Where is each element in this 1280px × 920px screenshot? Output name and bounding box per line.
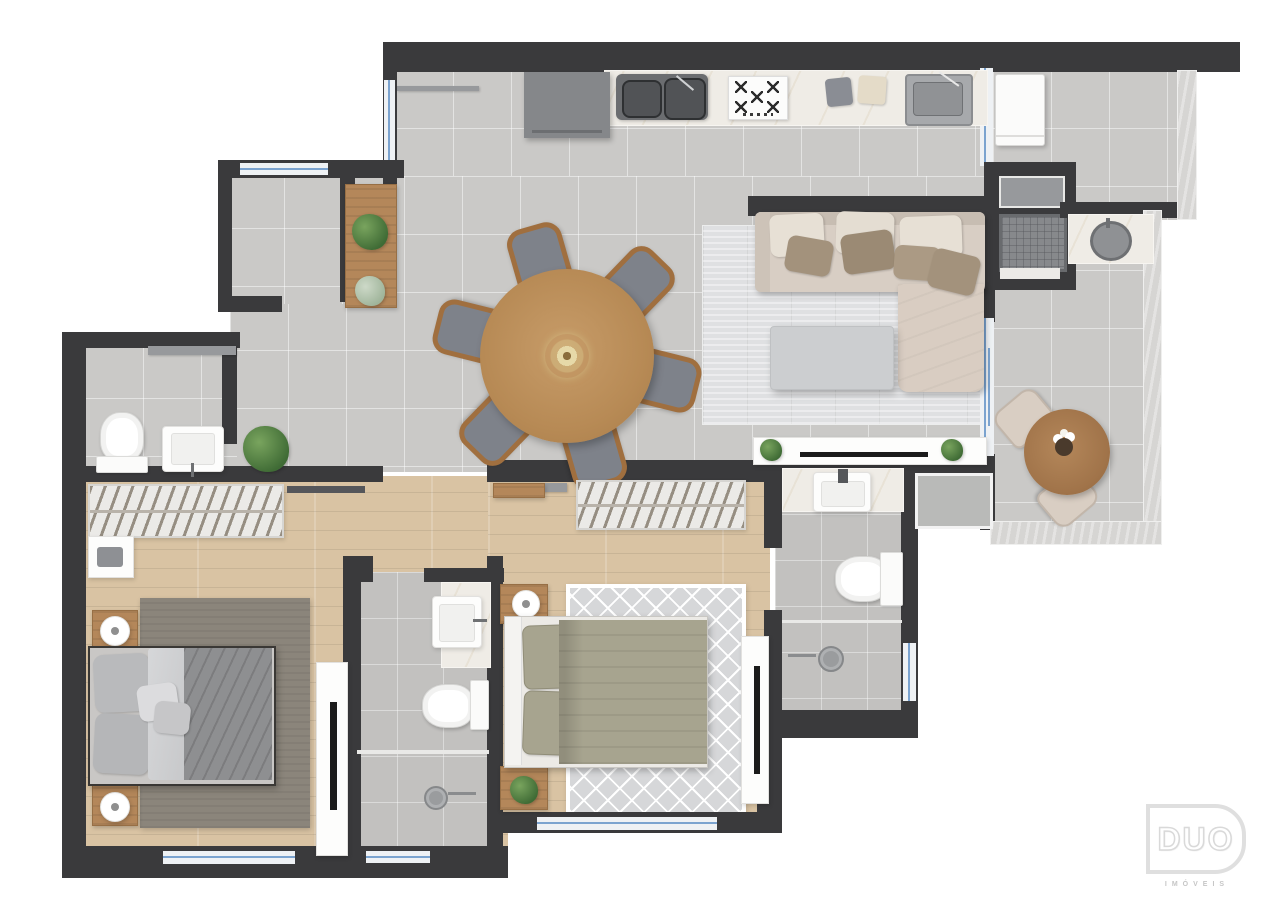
- sofa-accent-pillow: [783, 234, 835, 277]
- entry-room-window: [240, 163, 328, 175]
- powder-room-faucet: [191, 463, 194, 477]
- powder-room-shelf: [148, 346, 236, 355]
- tv-living: [800, 452, 928, 457]
- master-wall-shelf: [287, 486, 365, 493]
- master-lamp-top: [100, 616, 130, 646]
- kitchen-cabinet-handle: [532, 130, 602, 133]
- suite-wall-upper: [764, 468, 782, 548]
- bathroom-2-toilet-tank: [880, 552, 903, 606]
- entry-room-left-wall: [218, 170, 232, 312]
- floor-plan-canvas: DUO IMÓVEIS: [0, 0, 1280, 920]
- terrace-parapet-bottom: [990, 521, 1162, 545]
- bedroom-2-duvet: [559, 620, 707, 764]
- cooktop: [728, 76, 788, 120]
- bedroom-2-bed: [504, 616, 708, 768]
- terrace-niche: [915, 473, 993, 529]
- bathroom-2-shower-drain: [818, 646, 844, 672]
- bathroom-2-window: [903, 643, 916, 701]
- powder-room-vessel-sink: [162, 426, 224, 472]
- master-cushion: [152, 700, 191, 736]
- exterior-wall-left: [62, 332, 86, 878]
- washing-machine: [995, 74, 1045, 146]
- duo-logo: DUO: [1146, 804, 1246, 874]
- sofa-accent-pillow: [839, 229, 896, 276]
- kitchen-cabinet: [524, 72, 610, 138]
- tv-console-plant-left: [760, 439, 782, 461]
- round-bbq-sink: [1090, 221, 1132, 261]
- bathroom-2-shower-divider: [782, 620, 902, 623]
- bathroom-2-faucet: [838, 469, 848, 483]
- logo-tagline-text: IMÓVEIS: [1152, 881, 1242, 888]
- towel-gray: [825, 77, 854, 108]
- bathroom-1-toilet: [422, 684, 474, 728]
- tv-bedroom-2: [754, 666, 760, 774]
- bathroom-2-bottom-wall: [757, 710, 918, 738]
- master-bedroom-window: [163, 851, 295, 864]
- bistro-vase: [1055, 438, 1073, 456]
- bathroom-1-faucet: [473, 619, 487, 622]
- bedroom-2-lamp: [512, 590, 540, 618]
- entry-room-bottom-wall: [218, 296, 282, 312]
- folded-sweater: [97, 547, 123, 567]
- logo-brand-text: DUO: [1157, 821, 1234, 858]
- bathroom-1-toilet-tank: [470, 680, 489, 730]
- dining-corner-plant: [243, 426, 289, 472]
- bedroom-2-window: [537, 817, 717, 830]
- sideboard-plant-pale: [355, 276, 385, 306]
- master-wardrobe: [88, 484, 284, 538]
- tv-master-bedroom: [330, 702, 337, 810]
- duct-panel: [999, 176, 1065, 208]
- double-kitchen-sink: [616, 74, 708, 120]
- powder-room-toilet-tank: [96, 456, 148, 473]
- powder-room-toilet: [100, 412, 144, 462]
- master-lamp-bottom: [100, 792, 130, 822]
- terrace-parapet-upper-right: [1177, 70, 1197, 220]
- coffee-table: [770, 326, 894, 390]
- bathroom-1-shower-drain: [424, 786, 448, 810]
- powder-room-right-wall: [222, 348, 237, 444]
- bathroom-1-window: [366, 851, 430, 863]
- barbecue-shelf: [1000, 268, 1060, 279]
- hall-bench: [493, 483, 545, 498]
- cooktop-knobs: [743, 113, 773, 116]
- bathroom-2-shower-head: [788, 654, 816, 657]
- bathroom-1-shower-divider: [357, 750, 489, 754]
- master-duvet: [184, 648, 272, 780]
- bathroom-2-sink: [813, 472, 871, 512]
- sideboard-plant: [352, 214, 388, 250]
- towel-cream: [857, 75, 887, 105]
- exterior-wall-top: [383, 42, 1240, 72]
- bedroom-2-wardrobe: [576, 480, 746, 530]
- master-bed: [88, 646, 276, 786]
- master-shelf-niche: [88, 536, 134, 578]
- tv-console-plant-right: [941, 439, 963, 461]
- bathroom-1-door-jamb: [343, 556, 373, 582]
- kitchen-left-window: [384, 80, 395, 164]
- barbecue-grill: [999, 214, 1067, 272]
- bathroom-1-sink: [432, 596, 482, 648]
- master-pillow: [92, 713, 151, 776]
- laundry-sink: [905, 74, 973, 126]
- table-centerpiece: [545, 334, 589, 378]
- bedroom-2-plant: [510, 776, 538, 804]
- sink-basin-left: [622, 80, 662, 118]
- bathroom-1-shower-head: [448, 792, 476, 795]
- entry-room-floor: [226, 170, 346, 304]
- kitchen-wall-rail: [397, 86, 479, 91]
- bedroom-2-headboard: [505, 617, 522, 765]
- sofa-chaise: [898, 284, 984, 392]
